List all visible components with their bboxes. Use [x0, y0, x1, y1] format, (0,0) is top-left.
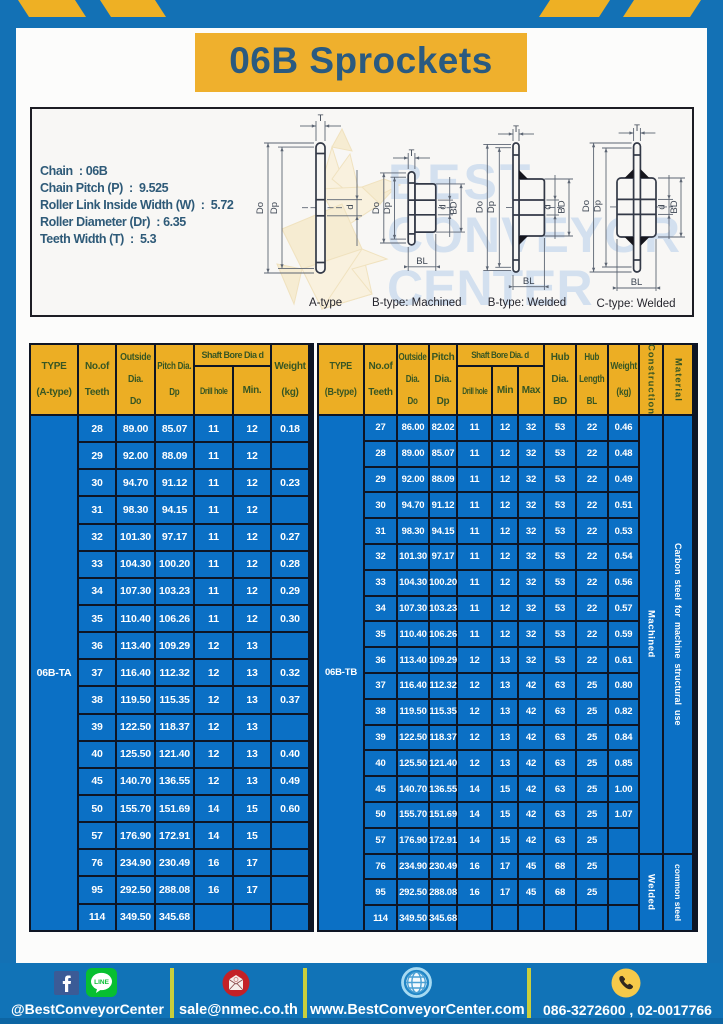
svg-text:d: d — [438, 204, 449, 209]
svg-text:Dp: Dp — [382, 202, 393, 214]
svg-text:Dp: Dp — [269, 202, 280, 214]
svg-text:Do: Do — [255, 202, 266, 214]
svg-text:C-type: Welded: C-type: Welded — [596, 298, 675, 310]
svg-text:B-type: Welded: B-type: Welded — [488, 297, 566, 309]
svg-text:T: T — [634, 123, 640, 134]
svg-text:d: d — [345, 204, 356, 209]
svg-text:T: T — [318, 113, 324, 124]
svg-text:BL: BL — [416, 256, 428, 267]
svg-text:d: d — [656, 204, 667, 209]
svg-text:A-type: A-type — [309, 297, 342, 309]
svg-text:T: T — [409, 148, 415, 159]
svg-text:Dp: Dp — [593, 200, 604, 212]
svg-text:BD: BD — [669, 200, 680, 213]
svg-text:BL: BL — [631, 277, 643, 288]
svg-text:BD: BD — [449, 201, 460, 214]
svg-text:Do: Do — [475, 201, 486, 213]
svg-text:T: T — [513, 124, 519, 135]
svg-text:BD: BD — [557, 200, 568, 213]
svg-text:Do: Do — [371, 202, 382, 214]
svg-text:Do: Do — [581, 200, 592, 212]
svg-text:BL: BL — [523, 276, 535, 287]
svg-text:LINE: LINE — [94, 979, 109, 986]
svg-text:B-type: Machined: B-type: Machined — [372, 297, 462, 309]
svg-text:Dp: Dp — [486, 201, 497, 213]
svg-text:d: d — [543, 204, 554, 209]
